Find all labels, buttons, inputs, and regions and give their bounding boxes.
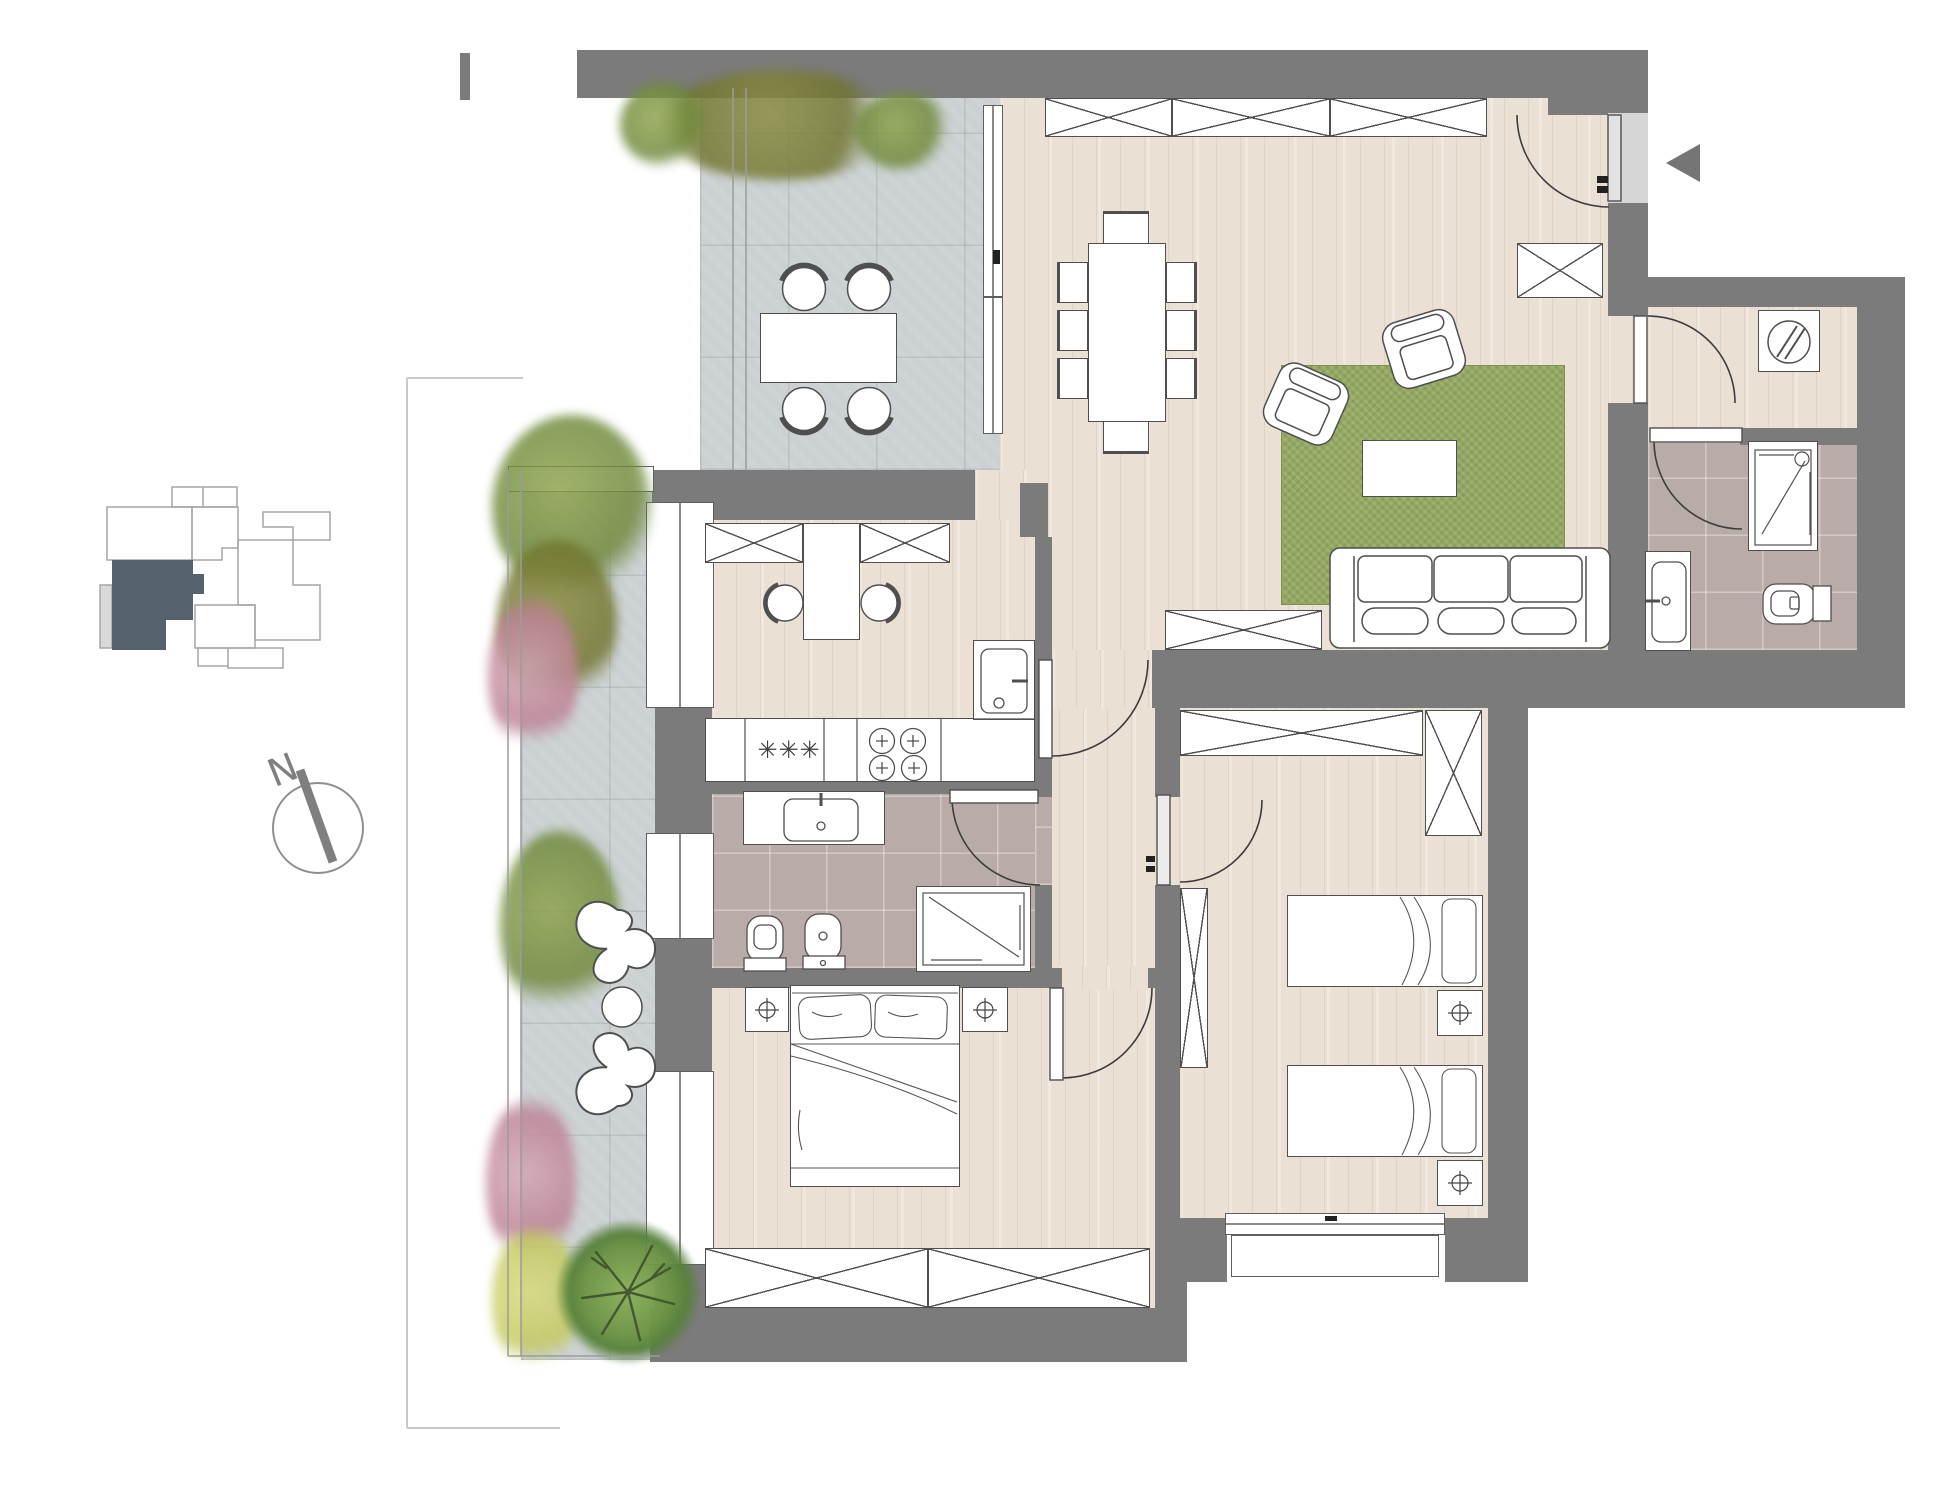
entry-arrow-icon [1666,144,1700,182]
kitchen-counter-lines [745,719,1034,781]
terrace-chair-3 [781,388,826,434]
lounge-chair-1 [561,896,665,994]
master-door-leaf [1050,988,1063,1080]
living-hall-door-leaf [1039,660,1052,758]
floor-plan-canvas: ✳✳✳ [0,0,1949,1485]
bathroom1-toilet [1763,584,1831,624]
terrace-chairs [781,265,891,433]
bathroom2-shower-details [923,893,1024,965]
key-map-unit-cap-2 [100,585,112,648]
bathroom1-door-arc [1654,441,1742,529]
bathroom1-basin [1645,562,1686,642]
sofa [1330,548,1610,648]
bathroom2-door-leaf [950,790,1038,803]
bathroom1-shower-details [1755,450,1811,545]
door-handles [993,176,1608,1221]
north-compass: N [261,744,363,873]
bathroom2-toilet [744,916,786,971]
entry-door-arc [1517,115,1609,207]
armchair-1 [1258,358,1353,450]
terrace-chair-2 [846,265,891,311]
hob-burners [870,729,927,781]
laundry-door-leaf [1634,316,1647,403]
armchair-2 [1379,306,1470,393]
master-door-arc [1062,988,1152,1078]
key-map-highlighted-unit [112,560,204,650]
key-map [100,487,330,668]
kids-bed-details [1400,897,1476,1155]
entry-door-leaf [1608,115,1621,201]
bathroom2-bidet [803,914,845,969]
property-boundary-lines [407,378,560,1428]
washing-machine-symbol [1768,321,1810,363]
terrace-balustrade-lines [508,88,746,1356]
kitchen-chair-right [861,584,899,622]
bathroom2-door-arc [952,797,1040,885]
kitchen-sink [981,649,1028,713]
laundry-door-arc [1648,316,1735,403]
kids-door-arc [1180,800,1262,882]
terrace-chair-4 [846,388,891,434]
tree-branches [582,1246,674,1340]
terrace-side-table [602,987,642,1027]
plan-detail-overlay: N [0,0,1949,1485]
bathroom2-basin [784,793,858,841]
kids-door-leaf [1157,795,1170,885]
living-hall-door-arc [1052,660,1148,756]
master-bed-details [791,993,959,1168]
lounge-chair-2 [561,1022,665,1120]
kitchen-chair-left [765,584,803,622]
terrace-chair-1 [781,265,826,311]
bathroom1-door-leaf [1650,428,1742,442]
